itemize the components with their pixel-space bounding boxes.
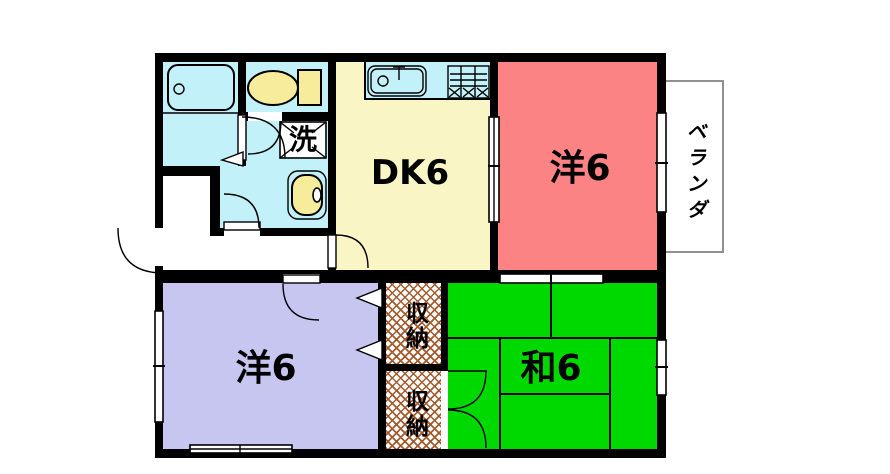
entrance-door-arc — [118, 228, 163, 273]
washroom-door-leaf — [224, 222, 260, 230]
room-label-japanese: 和6 — [520, 351, 581, 387]
toilet-icon — [248, 70, 321, 105]
window-western-bottom-left — [153, 311, 165, 422]
storage-lower-label: 収納 — [403, 389, 426, 439]
dk-door-arc — [336, 235, 368, 268]
plan-symbols — [0, 0, 890, 474]
folding-door-icon — [357, 288, 382, 308]
storage-door-arc-lower — [448, 410, 486, 448]
floor-plan: DK6 洋6 洋6 和6 洗 収納 収納 ベランダ — [0, 0, 890, 474]
sliding-door-veranda — [655, 113, 668, 212]
storage-door-arc-upper — [448, 371, 486, 409]
bathroom-door-wedge — [222, 152, 243, 166]
western-bottom-door-arc — [283, 284, 319, 320]
dk-door-leaf — [328, 235, 336, 268]
veranda-label: ベランダ — [685, 121, 705, 225]
window-japanese-right — [655, 340, 668, 395]
western-bottom-door-leaf — [283, 275, 320, 283]
toilet-door-arc — [248, 121, 281, 154]
room-label-western-bottom: 洋6 — [235, 351, 296, 387]
window-western-bottom-bottom — [190, 445, 292, 453]
sliding-door-western-japanese — [500, 272, 603, 285]
laundry-label: 洗 — [289, 126, 317, 154]
folding-door-icon — [357, 340, 382, 360]
kitchen-sink-icon — [368, 66, 426, 96]
room-label-dk: DK6 — [371, 156, 449, 190]
washbasin-icon — [288, 171, 326, 219]
sliding-door-dk-western — [488, 117, 500, 222]
bathtub-icon — [163, 65, 238, 113]
gas-stove-icon — [448, 66, 489, 98]
room-label-western-top: 洋6 — [549, 151, 610, 187]
storage-upper-label: 収納 — [403, 301, 426, 351]
